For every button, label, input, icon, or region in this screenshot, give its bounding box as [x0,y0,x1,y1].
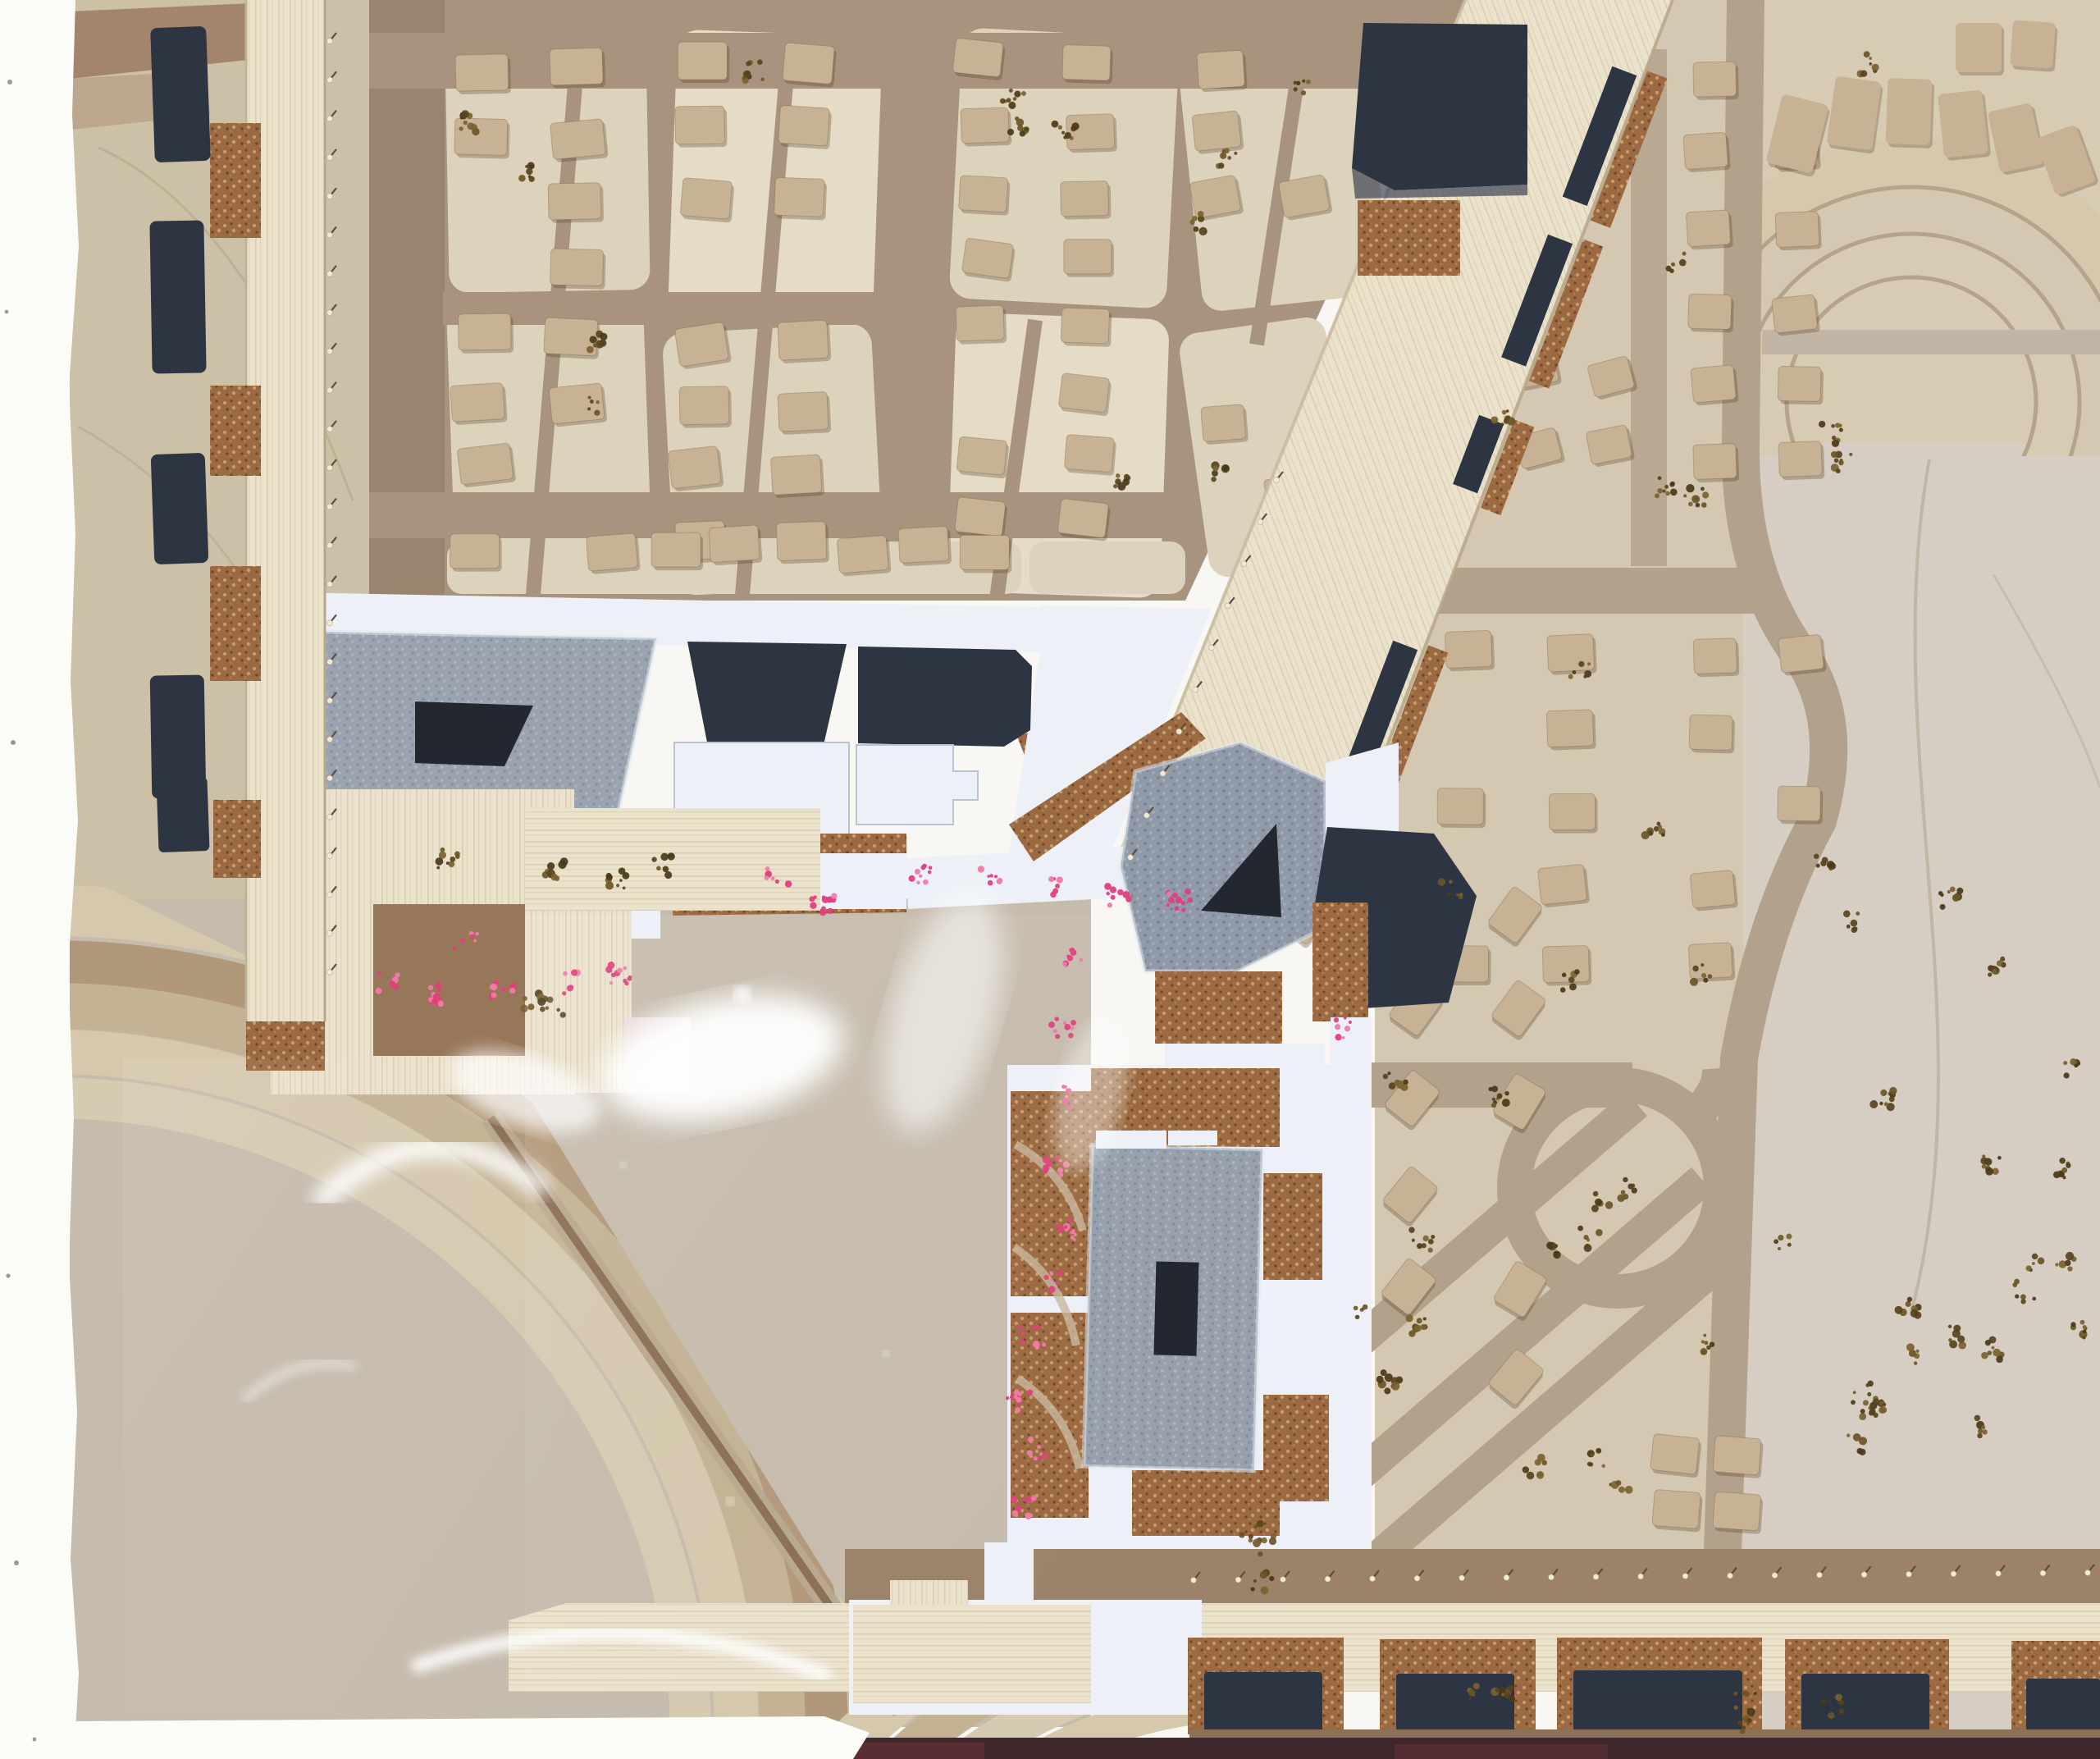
pin-head [2040,1570,2046,1576]
house [1192,111,1244,155]
arc-block [1956,23,2004,75]
house [674,322,732,370]
glare-dot [710,1027,720,1037]
house [1537,864,1590,908]
navy-building-a [687,642,847,745]
house [956,305,1007,345]
house [1778,786,1824,825]
pin-head [1325,1576,1331,1582]
house [898,526,952,566]
house [1066,114,1117,153]
house [1683,132,1731,173]
glare-dot [734,986,751,1003]
glare-dot [783,1062,792,1071]
cork-patch [1263,1173,1322,1280]
house [1064,240,1114,277]
pin-head [1144,812,1149,818]
pin-head [327,39,333,44]
pin-head [1593,1574,1599,1580]
cork-column [1312,902,1368,1021]
courtyard-hole-south [1153,1261,1198,1355]
pin-head [1128,855,1134,861]
house [1547,633,1597,675]
house [458,313,514,354]
house [1686,210,1733,250]
house [550,48,605,89]
house [709,525,763,566]
house [837,535,891,577]
pin-head [327,271,333,276]
house [450,534,502,572]
pin-head [327,814,333,820]
pin-head [327,194,333,199]
house [548,183,604,223]
house [668,445,724,492]
house [961,107,1011,147]
house [1778,634,1827,677]
pin-head [1225,603,1230,609]
pin-head [327,775,333,781]
pin-head [1951,1571,1956,1577]
house [782,43,837,88]
house [1693,62,1739,100]
pin-head [1370,1576,1376,1582]
pin-head [1459,1575,1465,1581]
house [550,249,605,290]
house [952,38,1006,80]
house [1197,50,1248,93]
white-path-spine [1331,1017,1372,1551]
house [680,178,735,223]
pin-head [1193,687,1198,692]
house [1061,308,1112,347]
house [1061,180,1112,219]
glare-dot [726,1497,734,1505]
left-torn-margin [0,0,79,1759]
arc-block [1938,89,1991,162]
pin-head [327,154,333,160]
pin-head [327,116,333,121]
pin-head [327,620,333,626]
house [651,532,703,570]
house [1201,404,1249,445]
house [679,386,732,428]
house [1689,715,1735,753]
house [586,532,640,574]
house [678,42,729,83]
architectural-model-photo [0,0,2100,1759]
house [1691,364,1739,406]
arc-block [1885,78,1934,148]
pin-head [327,427,333,432]
house [954,497,1008,541]
pin-head [1504,1574,1509,1580]
arc-block [1826,76,1884,154]
house [675,106,728,148]
pin-head [1235,1577,1241,1583]
house [454,118,510,159]
house [1778,366,1824,404]
pin-head [1772,1573,1778,1579]
house [1688,294,1734,333]
pin-head [1906,1571,1912,1577]
house [958,176,1010,216]
house [956,436,1010,479]
pin-head [1549,1574,1554,1580]
house [770,455,824,499]
house [774,177,827,220]
pin-head [1728,1573,1733,1579]
pin-head [2085,1570,2091,1576]
pin-head [327,659,333,665]
site-model-drawing [0,0,2100,1759]
house [1775,211,1822,250]
pin-head [1682,1574,1688,1579]
pin-head [327,504,333,509]
cork-patch [1155,971,1282,1044]
pin-head [327,465,333,471]
house [1772,295,1820,336]
pin-head [1996,1571,2002,1577]
pin-head [1241,561,1247,567]
house [776,521,829,564]
pin-head [1817,1572,1823,1578]
pin-head [327,737,333,742]
house [1542,945,1591,985]
gray-building-pentagon [1121,742,1326,971]
house [778,320,832,363]
glare-dot [620,1162,627,1168]
pin-head [327,930,333,936]
house [1057,498,1112,541]
pin-head [327,892,333,898]
house [1690,870,1738,911]
house [455,54,511,94]
pin-head [327,582,333,587]
glare-dot [883,1350,889,1357]
pin-head [1281,1577,1286,1583]
pin-head [1208,645,1214,651]
pin-head [327,853,333,859]
house [778,105,832,149]
pin-head [1191,1578,1197,1583]
navy-building-b [858,646,1032,747]
house [1437,788,1486,828]
pin-head [327,310,333,316]
house [550,118,608,162]
house [1064,434,1116,476]
bottom-left-margin [72,1716,870,1759]
cork-patch [1358,200,1460,276]
arc-block [2010,20,2058,72]
pin-head [327,698,333,704]
bottom-edge-red [1395,1744,1608,1759]
house [1650,1433,1702,1478]
house [549,383,607,427]
pin-head [1258,519,1263,525]
house [961,238,1016,282]
pin-head [327,349,333,354]
pin-head [327,542,333,548]
house [1445,630,1495,671]
pin-head [1160,770,1166,776]
pin-head [327,970,333,975]
terrain-road-band [1762,330,2100,354]
pin-head [327,77,333,83]
house [450,382,508,425]
house [1058,373,1112,417]
pin-head [327,232,333,238]
pin-head [1414,1575,1420,1581]
house [1693,443,1740,482]
house [778,391,831,435]
house [1652,1489,1703,1532]
house [1546,710,1596,751]
pin-head [1861,1572,1867,1578]
pin-head [1638,1574,1644,1579]
plaza-step [1168,1131,1217,1145]
pin-head [1176,729,1182,734]
house [1778,441,1825,481]
house [960,535,1011,573]
pin-head [327,387,333,393]
house [1712,1492,1763,1534]
house [1062,44,1113,84]
house [1549,793,1597,833]
house [1693,638,1739,678]
pin-head [1274,477,1280,483]
house [1713,1436,1764,1478]
house [457,442,516,488]
